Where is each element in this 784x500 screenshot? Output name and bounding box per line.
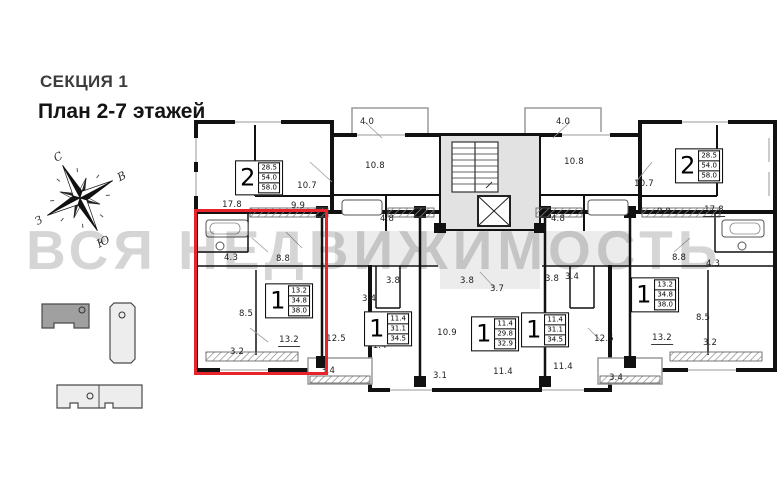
apartment-area-value: 54.0: [698, 160, 720, 170]
apartment-area-value: 31.1: [544, 324, 566, 334]
apartment-label[interactable]: 111.431.134.5: [521, 312, 569, 347]
compass-north-label: С: [51, 149, 65, 165]
apartment-area-value: 58.0: [258, 183, 280, 194]
site-plan-building-selected[interactable]: [42, 304, 89, 328]
apartment-area-value: 58.0: [698, 171, 720, 182]
apartment-areas: 28.554.058.0: [258, 162, 280, 193]
corridor: [440, 231, 540, 289]
selected-apartment-highlight[interactable]: [194, 209, 328, 375]
apartment-area-value: 54.0: [258, 172, 280, 182]
apartment-area-value: 13.2: [654, 279, 676, 289]
compass-west-label: З: [33, 213, 45, 228]
apartment-area-value: 11.4: [544, 314, 566, 324]
apartment-area-value: 32.9: [494, 339, 516, 350]
apartment-rooms-count: 1: [634, 284, 654, 307]
apartment-areas: 28.554.058.0: [698, 150, 720, 181]
apartment-rooms-count: 1: [474, 323, 494, 346]
apartment-areas: 11.429.832.9: [494, 318, 516, 349]
stairs: [452, 142, 498, 192]
plan-subtitle: План 2-7 этажей: [38, 100, 205, 124]
balcony: [352, 108, 428, 136]
apartment-label[interactable]: 111.429.832.9: [471, 316, 519, 351]
balcony: [525, 108, 601, 136]
apartment-areas: 11.431.134.5: [387, 313, 409, 344]
floor-plan-page: СЕКЦИЯ 1 План 2-7 этажей: [0, 0, 784, 500]
apartment-area-value: 11.4: [494, 318, 516, 328]
apartment-rooms-count: 2: [678, 155, 698, 178]
section-title: СЕКЦИЯ 1: [40, 72, 128, 92]
apartment-area-value: 28.5: [258, 162, 280, 172]
apartment-area-value: 29.8: [494, 328, 516, 338]
compass-rose-icon: С В Ю З: [24, 138, 136, 256]
apartment-label[interactable]: 111.431.134.5: [364, 311, 412, 346]
apartment-areas: 13.234.838.0: [654, 279, 676, 310]
apartment-area-value: 28.5: [698, 150, 720, 160]
apartment-rooms-count: 1: [367, 318, 387, 341]
apartment-area-value: 34.5: [387, 334, 409, 345]
apartment-area-value: 38.0: [654, 300, 676, 311]
apartment-rooms-count: 2: [238, 167, 258, 190]
apartment-area-value: 11.4: [387, 313, 409, 323]
site-plan: [30, 293, 150, 413]
apartment-area-value: 31.1: [387, 323, 409, 333]
apartment-areas: 11.431.134.5: [544, 314, 566, 345]
apartment-label[interactable]: 228.554.058.0: [235, 160, 283, 195]
apartment-label[interactable]: 228.554.058.0: [675, 148, 723, 183]
apartment-rooms-count: 1: [524, 319, 544, 342]
apartment-label[interactable]: 113.234.838.0: [631, 277, 679, 312]
apartment-area-value: 34.5: [544, 335, 566, 346]
elevator: [478, 196, 510, 226]
compass-south-label: Ю: [94, 233, 113, 251]
compass-east-label: В: [114, 169, 128, 185]
apartment-area-value: 34.8: [654, 289, 676, 299]
